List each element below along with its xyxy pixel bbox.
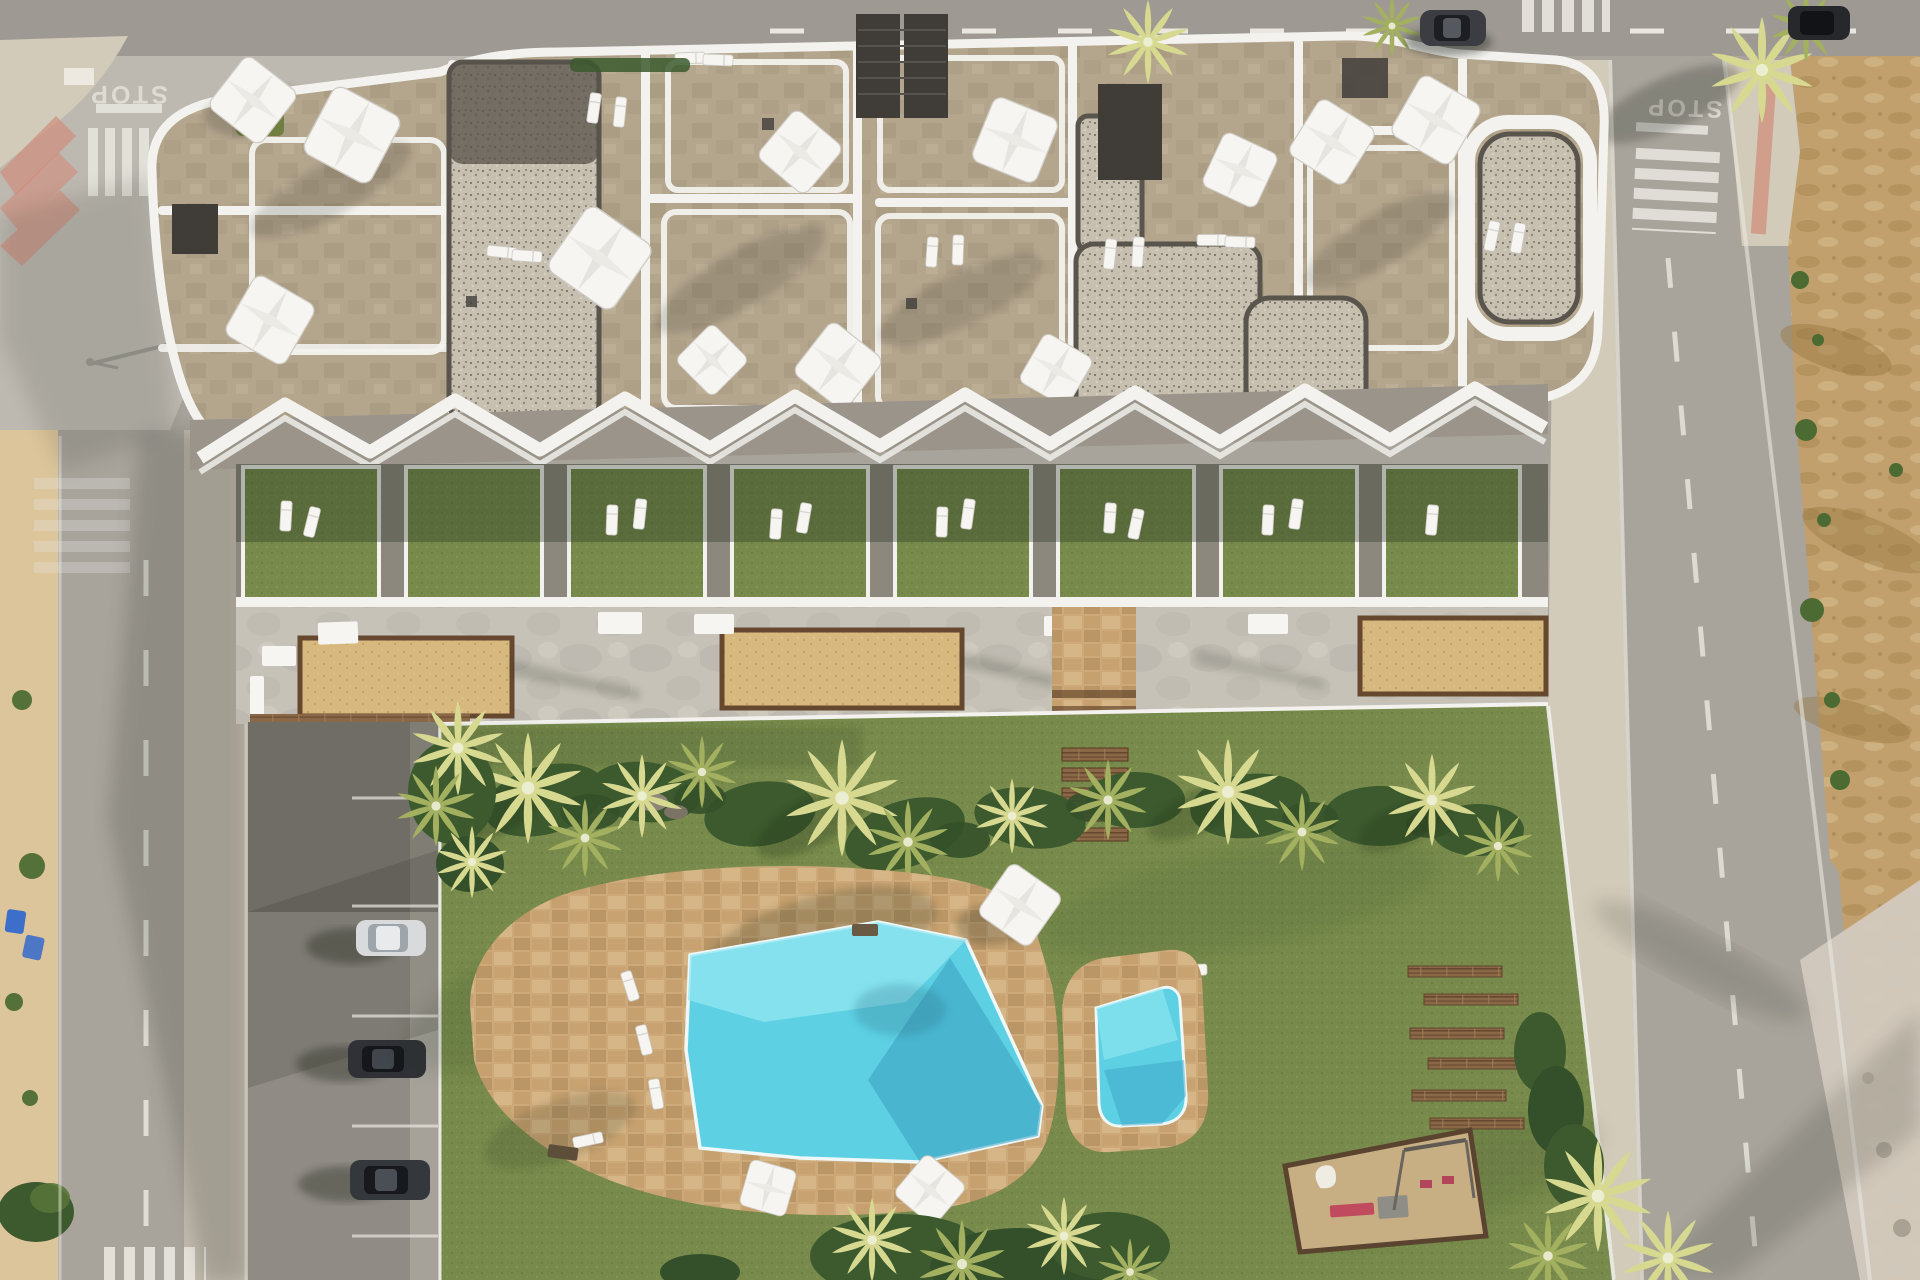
stair-core [172,204,218,254]
canopy-shadow [236,464,1548,542]
left-stop-marking: STOP [88,80,168,108]
aerial-render-canvas: STOP STOP [0,0,1920,1280]
driveway-parking [248,722,438,1280]
spring-rider [1315,1165,1336,1188]
small-pool [1062,950,1208,1152]
roof-hatch [1342,58,1388,98]
top-hedge [570,58,690,72]
aerial-site-plan: STOP STOP [0,0,1920,1280]
terrace-back-wall [236,597,1548,607]
apartment-building [152,14,1604,440]
garden-terraces [236,464,1548,612]
stair-core [1098,84,1162,180]
car-top-right [1788,6,1850,40]
towel [852,924,878,936]
